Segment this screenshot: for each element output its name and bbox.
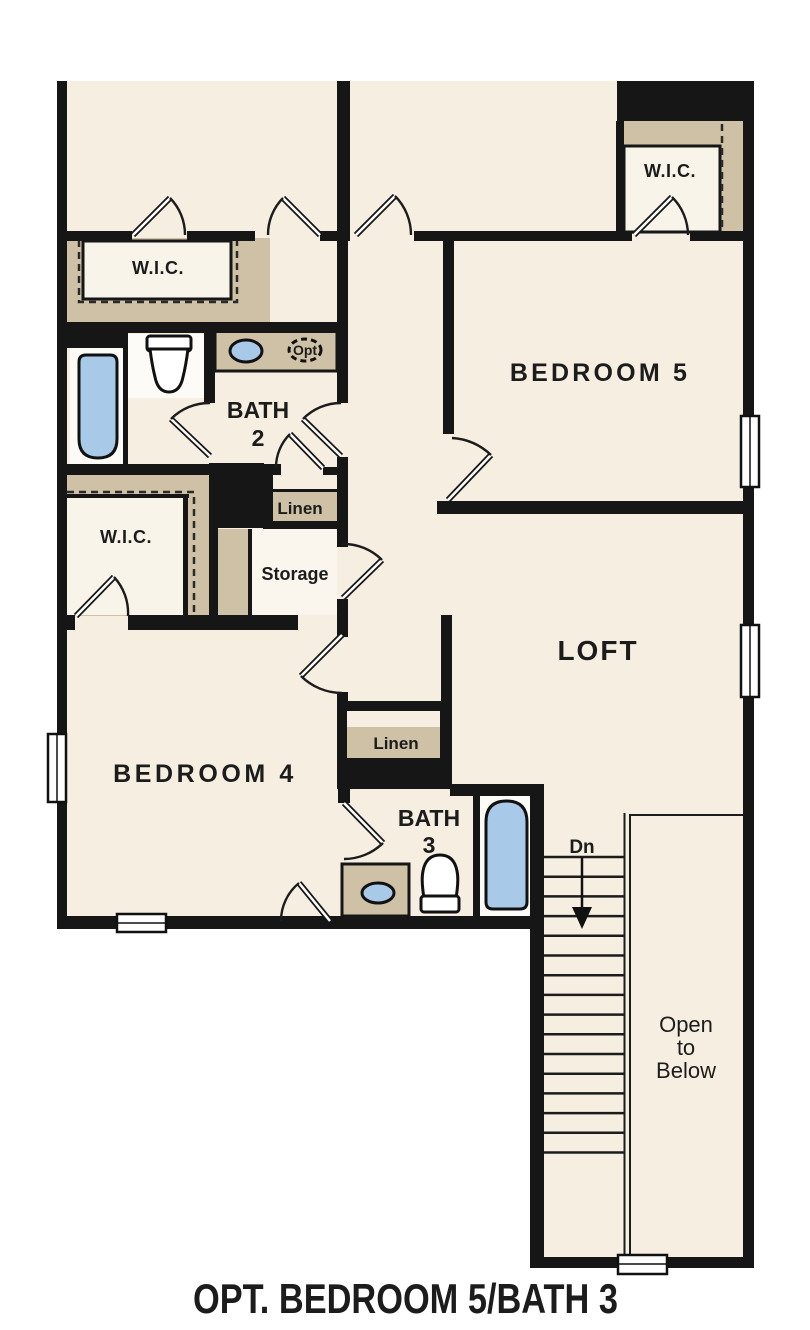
svg-text:Linen: Linen xyxy=(373,734,418,753)
svg-text:BEDROOM 4: BEDROOM 4 xyxy=(113,760,297,788)
svg-text:OPT. BEDROOM 5/BATH 3: OPT. BEDROOM 5/BATH 3 xyxy=(193,1275,618,1322)
svg-text:Storage: Storage xyxy=(261,564,328,584)
svg-text:BATH: BATH xyxy=(398,805,460,831)
svg-text:LOFT: LOFT xyxy=(557,635,638,666)
svg-text:W.I.C.: W.I.C. xyxy=(644,161,696,181)
svg-text:Dn: Dn xyxy=(569,837,594,858)
svg-text:BEDROOM 5: BEDROOM 5 xyxy=(510,359,690,387)
svg-text:3: 3 xyxy=(423,832,436,858)
svg-text:W.I.C.: W.I.C. xyxy=(100,527,152,547)
svg-text:to: to xyxy=(677,1035,695,1060)
svg-text:Linen: Linen xyxy=(277,499,322,518)
svg-text:Open: Open xyxy=(659,1012,713,1037)
svg-text:BATH: BATH xyxy=(227,397,289,423)
svg-text:W.I.C.: W.I.C. xyxy=(132,258,184,278)
svg-text:Below: Below xyxy=(656,1058,716,1083)
svg-text:2: 2 xyxy=(252,425,265,451)
svg-text:Opt: Opt xyxy=(293,342,317,358)
